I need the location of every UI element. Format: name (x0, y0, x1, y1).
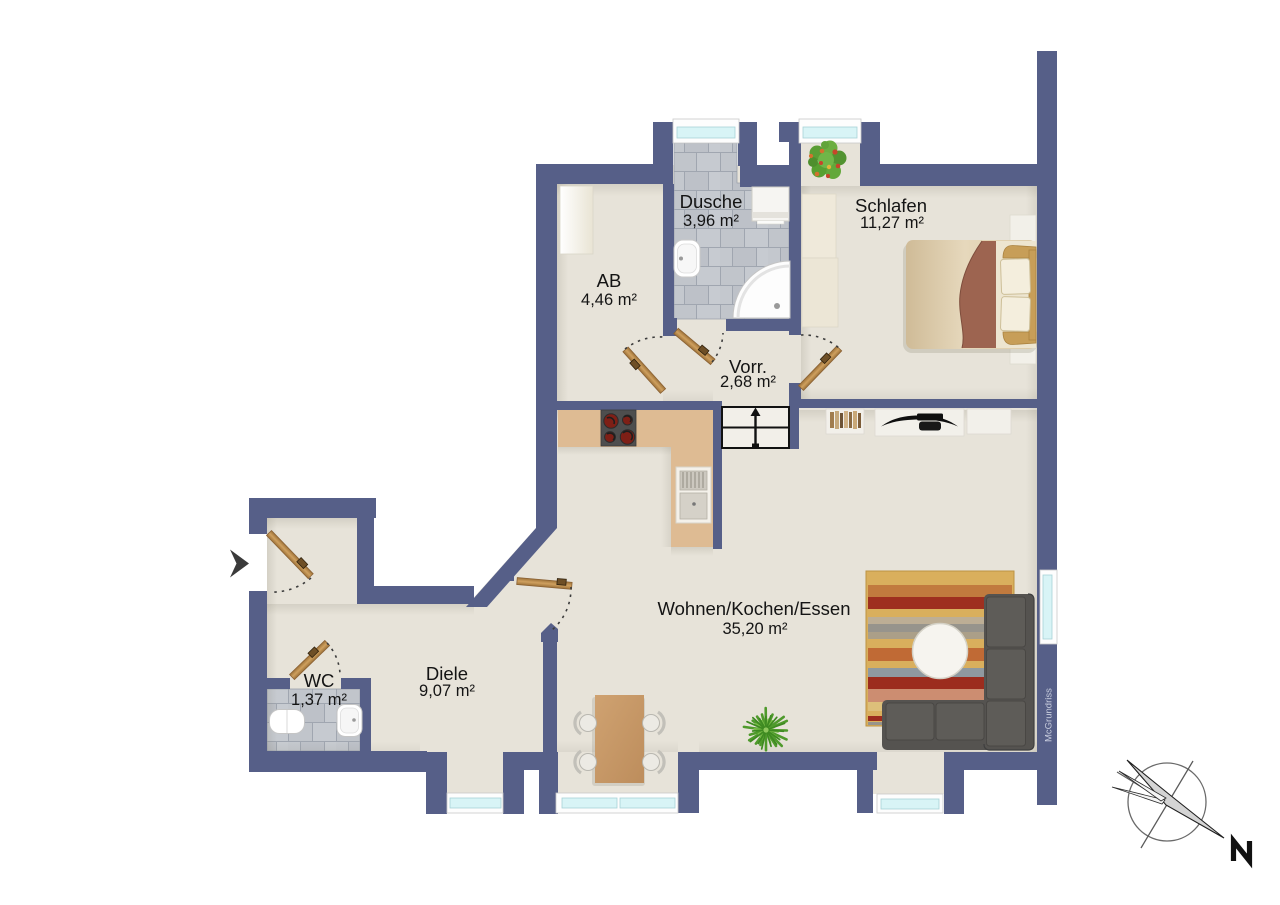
svg-text:Schlafen: Schlafen (855, 195, 927, 216)
svg-text:9,07 m²: 9,07 m² (419, 682, 475, 700)
svg-text:11,27 m²: 11,27 m² (860, 214, 924, 232)
svg-text:1,37 m²: 1,37 m² (291, 691, 347, 709)
svg-text:Wohnen/Kochen/Essen: Wohnen/Kochen/Essen (657, 598, 850, 619)
svg-text:Diele: Diele (426, 663, 468, 684)
svg-text:McGrundriss: McGrundriss (1044, 688, 1055, 742)
svg-text:4,46 m²: 4,46 m² (581, 291, 637, 309)
svg-text:2,68 m²: 2,68 m² (720, 373, 776, 391)
svg-text:AB: AB (597, 270, 622, 291)
svg-text:3,96 m²: 3,96 m² (683, 212, 739, 230)
svg-text:WC: WC (304, 670, 335, 691)
svg-text:35,20 m²: 35,20 m² (722, 620, 788, 638)
svg-text:Dusche: Dusche (680, 191, 743, 212)
